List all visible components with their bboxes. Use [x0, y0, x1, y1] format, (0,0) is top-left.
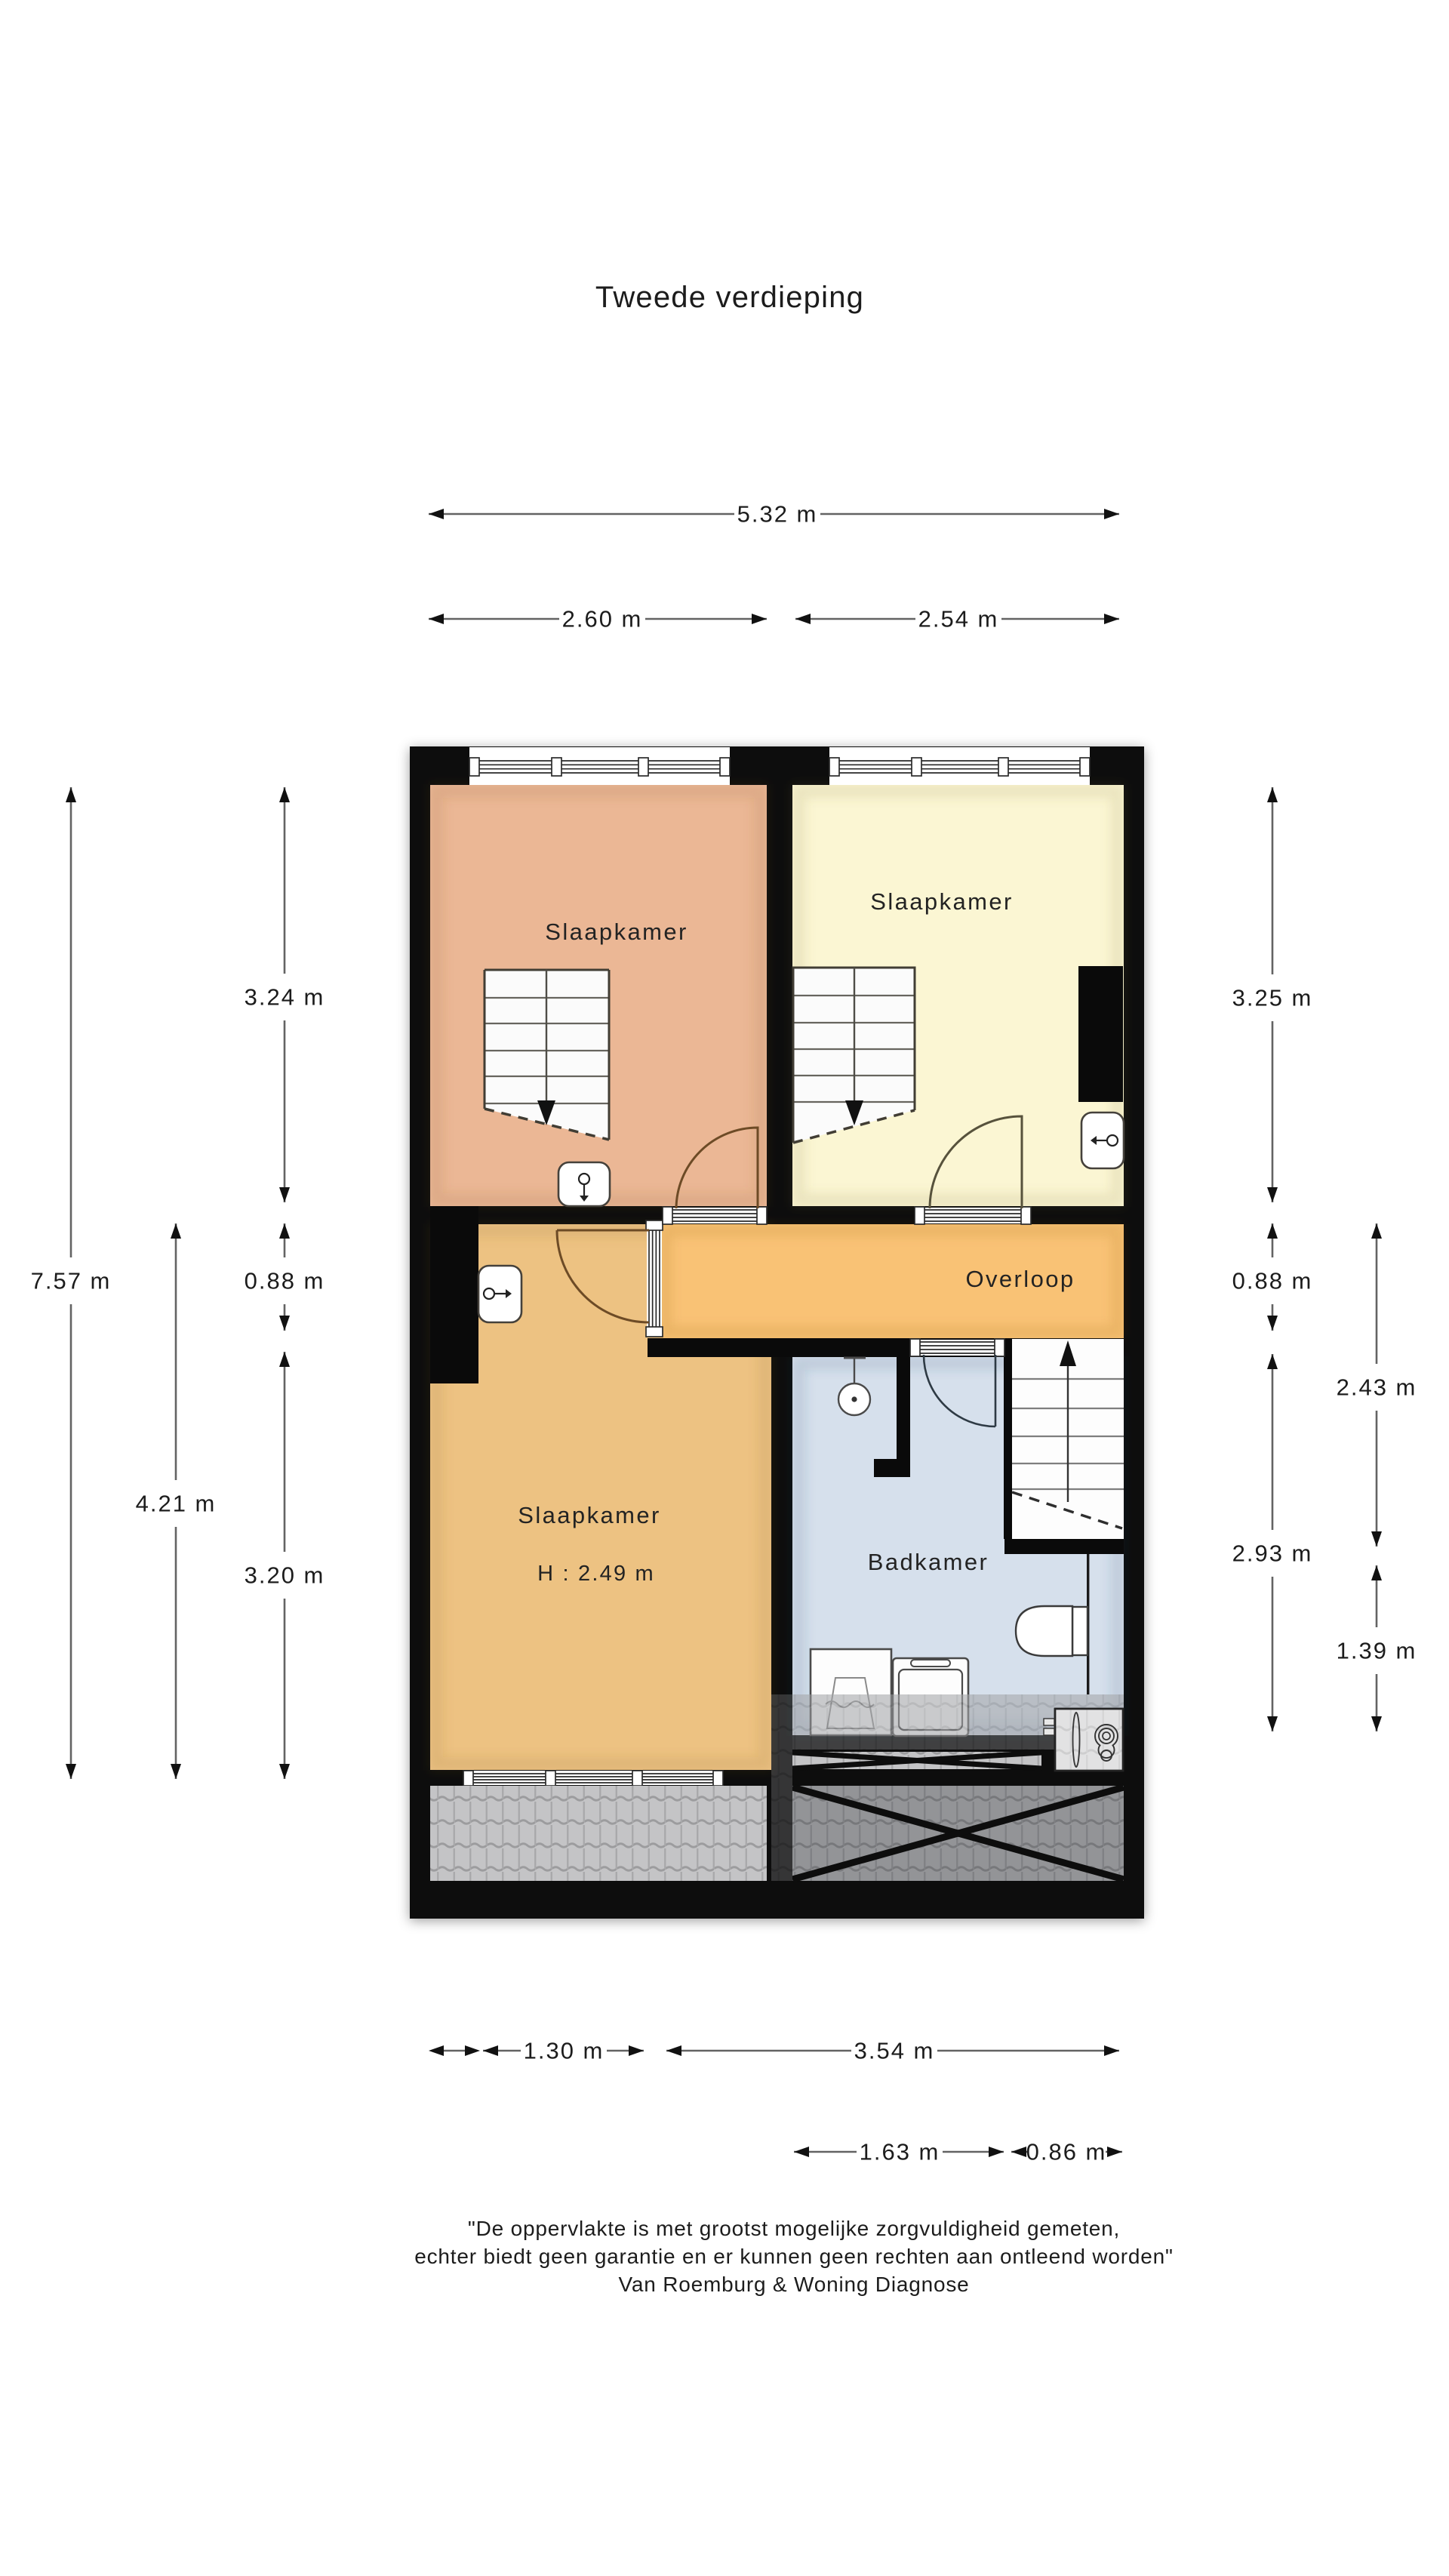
- svg-text:3.24 m: 3.24 m: [245, 984, 325, 1011]
- svg-text:3.25 m: 3.25 m: [1232, 985, 1313, 1011]
- svg-text:1.63 m: 1.63 m: [860, 2139, 940, 2165]
- svg-text:echter biedt geen garantie en: echter biedt geen garantie en er kunnen …: [414, 2245, 1174, 2268]
- svg-text:Overloop: Overloop: [966, 1266, 1075, 1292]
- svg-text:Slaapkamer: Slaapkamer: [545, 919, 688, 945]
- svg-text:1.30 m: 1.30 m: [524, 2038, 605, 2064]
- svg-text:2.93 m: 2.93 m: [1232, 1540, 1313, 1567]
- svg-text:0.88 m: 0.88 m: [1232, 1268, 1313, 1294]
- svg-text:Slaapkamer: Slaapkamer: [518, 1502, 660, 1528]
- svg-text:7.57 m: 7.57 m: [31, 1268, 112, 1294]
- svg-text:Slaapkamer: Slaapkamer: [870, 888, 1013, 915]
- svg-text:"De oppervlakte is met grootst: "De oppervlakte is met grootst mogelijke…: [468, 2217, 1120, 2240]
- svg-text:3.20 m: 3.20 m: [245, 1562, 325, 1589]
- svg-text:3.54 m: 3.54 m: [854, 2038, 935, 2064]
- svg-text:Van Roemburg & Woning Diagnose: Van Roemburg & Woning Diagnose: [619, 2273, 970, 2296]
- svg-text:5.32 m: 5.32 m: [737, 501, 818, 528]
- svg-text:2.43 m: 2.43 m: [1337, 1374, 1417, 1401]
- svg-text:2.60 m: 2.60 m: [562, 606, 643, 632]
- svg-text:Badkamer: Badkamer: [868, 1549, 989, 1575]
- svg-text:0.86 m: 0.86 m: [1026, 2139, 1107, 2165]
- svg-text:H : 2.49 m: H : 2.49 m: [537, 1562, 655, 1586]
- svg-text:4.21 m: 4.21 m: [136, 1491, 217, 1517]
- svg-text:2.54 m: 2.54 m: [918, 606, 999, 632]
- svg-text:1.39 m: 1.39 m: [1337, 1638, 1417, 1664]
- svg-text:0.88 m: 0.88 m: [245, 1268, 325, 1294]
- svg-text:Tweede verdieping: Tweede verdieping: [595, 281, 864, 314]
